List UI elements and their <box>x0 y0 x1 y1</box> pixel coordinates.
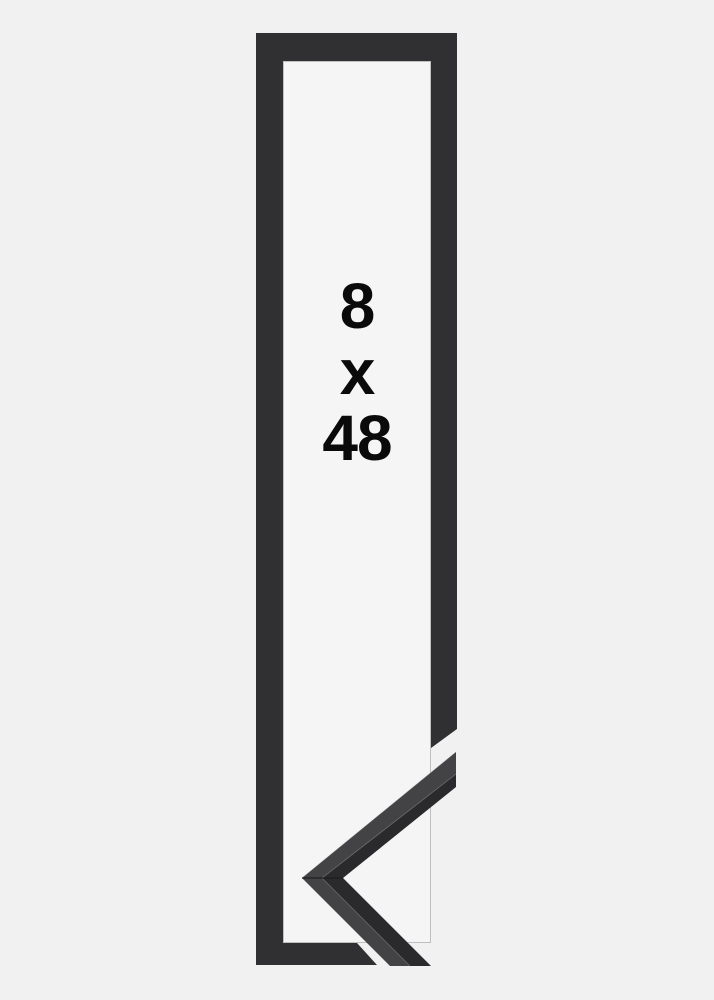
size-height-text: 48 <box>322 405 391 471</box>
frame-scene <box>0 0 714 1000</box>
size-label: 8 x 48 <box>283 273 431 471</box>
size-separator-text: x <box>340 339 375 405</box>
frame-product-image: 8 x 48 <box>0 0 714 1000</box>
size-width-text: 8 <box>340 273 375 339</box>
